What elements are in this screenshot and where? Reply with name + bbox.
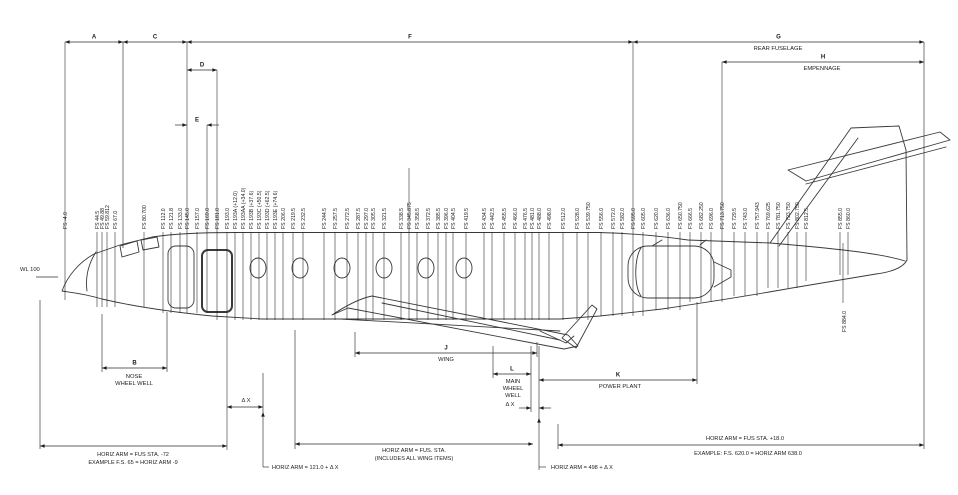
station-label: FS 145.0: [185, 208, 191, 229]
horiz-arm-mid-note-2: (INCLUDES ALL WING ITEMS): [375, 456, 454, 462]
station-label: FS 636.0: [666, 208, 672, 229]
leader-arrowhead: [261, 412, 265, 417]
station-label: FS 512.0: [561, 208, 567, 229]
station-label: FS 193AA (+34.0): [241, 187, 247, 229]
dimension-arrowhead: [187, 68, 192, 71]
delta-x-left-label: Δ X: [241, 398, 250, 404]
station-label: FS 297.0: [364, 208, 370, 229]
station-label: FS 595.0: [631, 208, 637, 229]
dimension-arrowhead: [919, 40, 924, 43]
dimension-arrowhead: [227, 405, 232, 408]
main-wheel-well-caption-3: WELL: [505, 393, 522, 399]
wing-belly-line: [340, 319, 560, 331]
dimension-arrowhead: [558, 443, 563, 446]
entry-door: [168, 246, 194, 308]
station-label: FS 781.750: [776, 202, 782, 229]
dimension-arrowhead: [628, 40, 633, 43]
wing-caption: WING: [438, 357, 454, 363]
station-label: FS 193.0: [225, 208, 231, 229]
dimension-arrowhead: [692, 378, 697, 381]
station-label: FS 620.0: [654, 208, 660, 229]
station-label: FS 860.0: [846, 208, 852, 229]
horiz-arm-right-note-2: EXAMPLE: F.S. 620.0 = HORIZ ARM 638.0: [694, 451, 802, 457]
engine-pylon: [652, 240, 706, 246]
waterline-label: WL 100: [20, 267, 40, 273]
station-label: FS 232.5: [301, 208, 307, 229]
dimension-arrowhead: [207, 123, 212, 126]
station-label: FS 287.5: [356, 208, 362, 229]
dimension-arrowhead: [919, 60, 924, 63]
dimension-arrowhead: [633, 40, 638, 43]
aircraft-silhouette: [62, 126, 950, 349]
station-label: FS 219.5: [291, 208, 297, 229]
station-label: FS 539.750: [586, 202, 592, 229]
wing-outline: [332, 296, 578, 349]
station-label: FS 757.943: [755, 202, 761, 229]
horiz-arm-498-note: HORIZ ARM = 498 + Δ X: [551, 465, 613, 471]
station-label: FS 855.0: [838, 208, 844, 229]
dimension-letter: C: [153, 35, 158, 41]
dimension-lines: ACFGHDEBJLK: [40, 35, 924, 448]
station-label: FS 385.5: [436, 208, 442, 229]
dimension-letter: J: [444, 346, 447, 352]
dimension-letter: F: [408, 35, 412, 41]
main-wheel-well-caption-1: MAIN: [506, 379, 521, 385]
station-label: FS 206.0: [281, 208, 287, 229]
nose-wheel-well-caption-2: WHEEL WELL: [115, 381, 154, 387]
horiz-arm-left-note-2: EXAMPLE F.S. 65 = HORIZ ARM -9: [88, 460, 177, 466]
dimension-arrowhead: [123, 40, 128, 43]
dimension-arrowhead: [65, 40, 70, 43]
horiz-arm-mid-note-1: HORIZ ARM = FUS. STA.: [382, 448, 446, 454]
dimension-arrowhead: [539, 406, 544, 409]
station-label: FS 528.0: [575, 208, 581, 229]
dimension-arrowhead: [118, 40, 123, 43]
station-label: FS 321.5: [382, 208, 388, 229]
cabin-window: [292, 258, 308, 278]
annotations: WL 100REAR FUSELAGEEMPENNAGENOSEWHEEL WE…: [20, 46, 841, 471]
engine-inlet-lip: [636, 248, 641, 296]
main-wheel-well-caption-2: WHEEL: [503, 386, 524, 392]
station-label: FS -4.0: [63, 212, 69, 229]
station-label: FS 338.5: [399, 208, 405, 229]
rear-fuselage-caption: REAR FUSELAGE: [754, 46, 803, 52]
dimension-arrowhead: [355, 351, 360, 354]
dimension-arrowhead: [212, 68, 217, 71]
station-label: FS 193B (+37.6): [249, 191, 255, 229]
station-label: FS 67.0: [113, 211, 119, 229]
extension-lines: [36, 42, 924, 470]
dimension-arrowhead: [528, 442, 533, 445]
station-label: FS 793.750: [786, 202, 792, 229]
dimension-arrowhead: [162, 366, 167, 369]
station-label: FS 193E (+74.6): [273, 191, 279, 229]
station-label: FS 419.5: [464, 208, 470, 229]
dimension-arrowhead: [40, 444, 45, 447]
station-label: FS 650.750: [678, 202, 684, 229]
dimension-arrowhead: [295, 442, 300, 445]
station-label: FS 193A (+12.0): [233, 191, 239, 229]
dimension-arrowhead: [258, 405, 263, 408]
dimension-letter: E: [195, 118, 199, 124]
dimension-arrowhead: [187, 40, 192, 43]
dimension-letter: L: [510, 367, 514, 373]
dimension-letter: H: [821, 55, 825, 61]
wing-flap-line: [382, 303, 560, 340]
station-label: FS 169.0: [205, 208, 211, 229]
station-label: FS 396.0: [444, 208, 450, 229]
station-label: FS 498.0: [547, 208, 553, 229]
station-label: FS 812.5: [804, 208, 810, 229]
elevator-line: [806, 147, 946, 184]
dimension-letter: A: [92, 35, 97, 41]
dimension-arrowhead: [102, 366, 107, 369]
station-label: FS 181.0: [215, 208, 221, 229]
dimension-letter: D: [200, 63, 205, 69]
leader-arrowhead: [537, 418, 541, 423]
station-label: FS 133.0: [178, 208, 184, 229]
station-label: FS 572.0: [611, 208, 617, 229]
station-label: FS 713.750: [720, 202, 726, 229]
station-label: FS 476.5: [523, 208, 529, 229]
horiz-arm-121-note: HORIZ ARM = 121.0 + Δ X: [272, 465, 339, 471]
station-label: FS 802.750: [795, 202, 801, 229]
dimension-letter: B: [132, 361, 137, 367]
station-label: FS 157.0: [195, 208, 201, 229]
station-label: FS 112.0: [161, 208, 167, 229]
station-label: FS 556.0: [599, 208, 605, 229]
station-label: FS 696.0: [709, 208, 715, 229]
diagram-canvas: FS -4.0FS 44.5FS 49.88FS 59.812FS 67.0FS…: [0, 0, 958, 495]
dimension-arrowhead: [722, 60, 727, 63]
station-label: FS 605.0: [641, 208, 647, 229]
station-label: FS 59.812: [105, 205, 111, 229]
dimension-letter: G: [776, 35, 781, 41]
station-label: FS 743.0: [743, 208, 749, 229]
station-label: FS 121.8: [169, 208, 175, 229]
station-label: FS 434.5: [482, 208, 488, 229]
station-label: FS 345.875: [407, 202, 413, 229]
dimension-arrowhead: [182, 40, 187, 43]
engine-exhaust: [714, 262, 731, 287]
empennage-caption: EMPENNAGE: [803, 66, 840, 72]
station-label: FS 682.250: [699, 202, 705, 229]
cabin-window: [456, 258, 472, 278]
station-label: FS 257.5: [333, 208, 339, 229]
station-label: FS 488.0: [537, 208, 543, 229]
station-label: FS 372.5: [426, 208, 432, 229]
station-label: FS 193D (+62.5): [265, 190, 271, 229]
fuselage-station-diagram: FS -4.0FS 44.5FS 49.88FS 59.812FS 67.0FS…: [0, 0, 958, 495]
dimension-arrowhead: [539, 378, 544, 381]
station-label: FS 193C (+50.5): [257, 190, 263, 229]
station-label: FS 884.0: [842, 311, 848, 332]
dimension-arrowhead: [526, 406, 531, 409]
cabin-window: [334, 258, 350, 278]
station-label: FS 582.0: [620, 208, 626, 229]
station-label: FS 466.0: [513, 208, 519, 229]
station-label: FS 442.5: [490, 208, 496, 229]
horizontal-stabilizer: [788, 132, 950, 181]
power-plant-caption: POWER PLANT: [599, 384, 642, 390]
dimension-arrowhead: [919, 443, 924, 446]
dimension-arrowhead: [222, 444, 227, 447]
dimension-arrowhead: [526, 372, 531, 375]
dimension-arrowhead: [182, 123, 187, 126]
tail-fairing-line: [770, 243, 905, 261]
dimension-arrowhead: [532, 351, 537, 354]
delta-x-right-label: Δ X: [505, 402, 514, 408]
cabin-window: [250, 258, 266, 278]
station-label: FS 666.5: [688, 208, 694, 229]
station-label: FS 272.5: [345, 208, 351, 229]
station-label: FS 80.700: [142, 205, 148, 229]
station-label: FS 404.5: [451, 208, 457, 229]
station-label: FS 455.5: [502, 208, 508, 229]
cabin-window: [418, 258, 434, 278]
horiz-arm-right-note-1: HORIZ ARM = FUS STA. +18.0: [706, 436, 784, 442]
dimension-letter: K: [616, 373, 621, 379]
horiz-arm-left-note-1: HORIZ ARM = FUS STA. -72: [97, 452, 169, 458]
station-label: FS 481.0: [530, 208, 536, 229]
station-label: FS 244.5: [322, 208, 328, 229]
station-label: FS 358.5: [415, 208, 421, 229]
nose-wheel-well-caption-1: NOSE: [126, 374, 143, 380]
station-label: FS 729.5: [732, 208, 738, 229]
station-label: FS 769.625: [766, 202, 772, 229]
station-label: FS 305.5: [371, 208, 377, 229]
dimension-arrowhead: [493, 372, 498, 375]
